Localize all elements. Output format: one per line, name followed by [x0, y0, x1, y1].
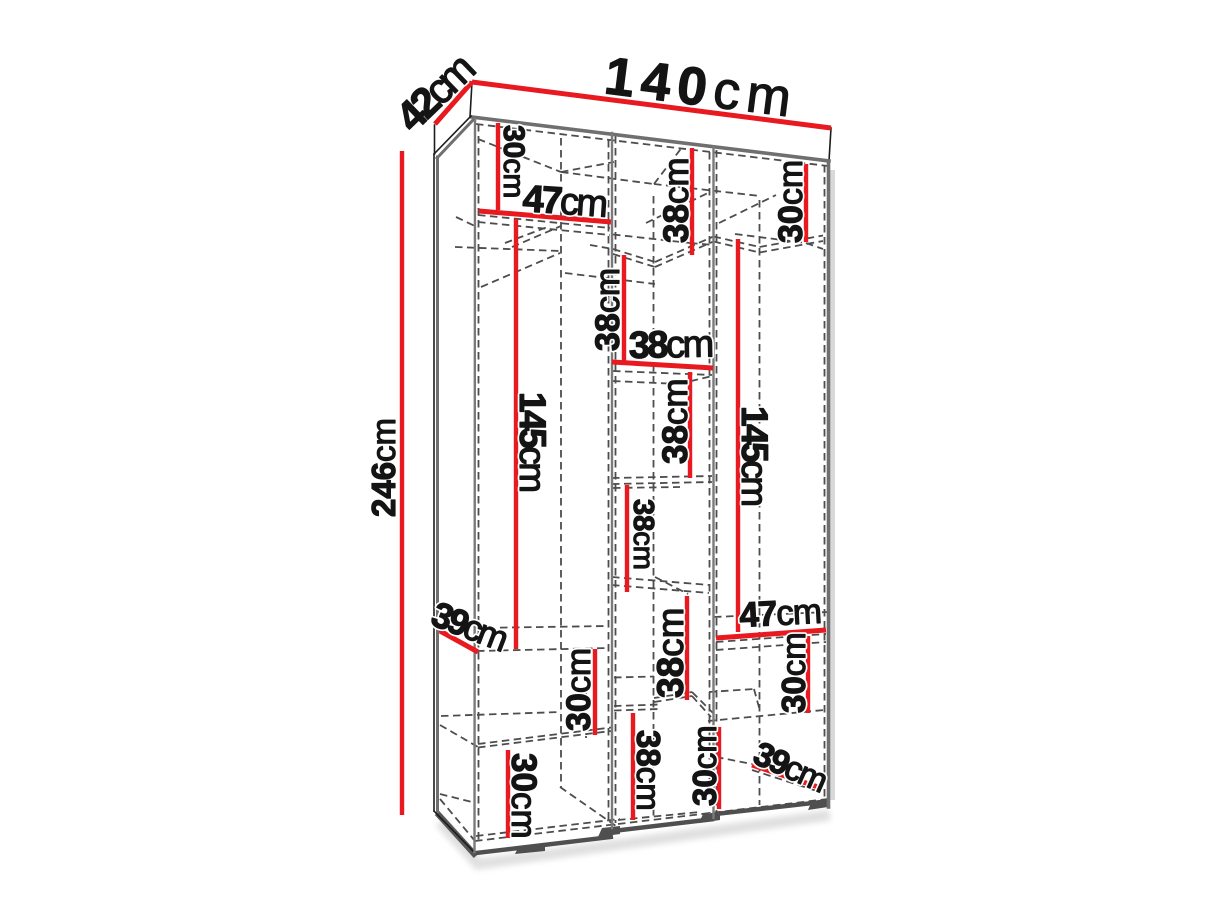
svg-text:30cm: 30cm [775, 632, 812, 713]
svg-text:30cm: 30cm [772, 160, 810, 243]
svg-text:47cm: 47cm [738, 592, 822, 635]
svg-text:47cm: 47cm [521, 178, 608, 226]
svg-text:30cm: 30cm [504, 753, 543, 839]
svg-text:38cm: 38cm [628, 324, 713, 367]
svg-text:38cm: 38cm [656, 378, 695, 464]
svg-text:38cm: 38cm [657, 157, 696, 243]
svg-text:145cm: 145cm [734, 406, 775, 505]
svg-text:38cm: 38cm [650, 608, 691, 698]
svg-text:38cm: 38cm [627, 499, 659, 570]
svg-text:38cm: 38cm [630, 730, 667, 811]
svg-text:30cm: 30cm [686, 725, 723, 806]
svg-text:145cm: 145cm [512, 392, 553, 491]
svg-text:30cm: 30cm [560, 648, 598, 731]
svg-text:38cm: 38cm [589, 268, 627, 351]
svg-text:246cm: 246cm [365, 418, 402, 517]
